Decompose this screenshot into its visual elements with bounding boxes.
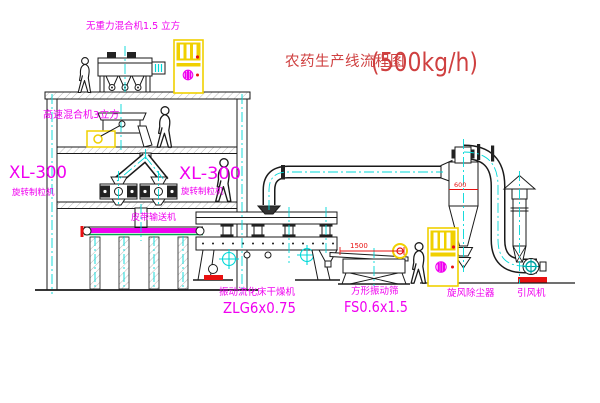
flow-diagram-canvas: 600 1500 农药生产线流程图 (500kg/h) 无重力混合机1.5 立方… [0, 0, 600, 403]
label-high-speed-mixer: 高速混合机3立方 [43, 108, 119, 121]
roof-slab [45, 92, 250, 99]
label-gravity-mixer: 无重力混合机1.5 立方 [86, 20, 180, 32]
control-cabinet-right [428, 228, 458, 286]
cad-drawing-page: 600 1500 农药生产线流程图 (500kg/h) 无重力混合机1.5 立方… [0, 0, 600, 403]
label-cyclone: 旋风除尘器 [447, 287, 495, 299]
gravity-mixer [98, 52, 165, 92]
control-cabinet-top [174, 40, 203, 93]
fan-base [518, 277, 547, 283]
motor-base [204, 275, 223, 280]
fluid-bed-dryer [193, 212, 340, 280]
person-figure [157, 107, 171, 147]
title-capacity: (500kg/h) [371, 48, 478, 78]
indicator-dot [452, 245, 455, 248]
label-granulator-mid-model: XL-300 [179, 164, 241, 184]
indicator-dot [196, 55, 199, 58]
label-fan: 引风机 [517, 287, 546, 299]
vibrating-screen [330, 244, 410, 284]
person-figure [78, 58, 90, 93]
cyclone-vortex-cap [452, 147, 475, 163]
drawing-title: 农药生产线流程图 (500kg/h) [285, 48, 478, 78]
label-screen-model: FS0.6x1.5 [344, 298, 408, 316]
label-belt-conveyor: 皮带输送机 [131, 211, 176, 223]
motor-box [87, 131, 115, 147]
pipe-flange [477, 144, 480, 160]
belt-conveyor [81, 226, 205, 289]
label-granulator-left-name: 旋转制粒机 [12, 187, 55, 198]
label-dryer-name: 振动流化床干燥机 [219, 286, 296, 298]
label-dryer-model: ZLG6x0.75 [223, 299, 296, 317]
dim-dryer-outlet: 1500 [350, 242, 368, 250]
label-granulator-mid-name: 旋转制粒机 [181, 186, 224, 197]
person-figure [411, 243, 425, 283]
pipe-flange [491, 146, 494, 162]
label-granulator-left-model: XL-300 [9, 163, 67, 183]
dim-cyclone-width: 600 [454, 181, 466, 189]
label-screen-name: 方形振动筛 [351, 285, 399, 297]
